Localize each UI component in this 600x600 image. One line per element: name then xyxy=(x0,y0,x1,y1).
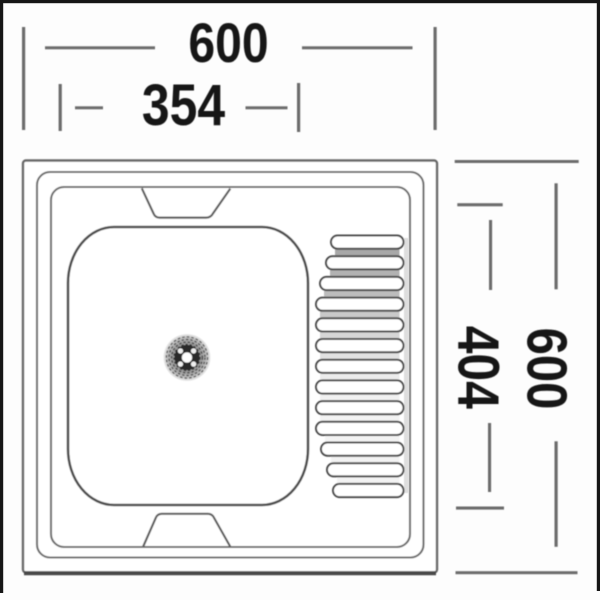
svg-text:600: 600 xyxy=(188,13,268,75)
svg-text:600: 600 xyxy=(515,328,578,410)
svg-text:354: 354 xyxy=(142,73,225,137)
svg-text:404: 404 xyxy=(445,326,509,409)
